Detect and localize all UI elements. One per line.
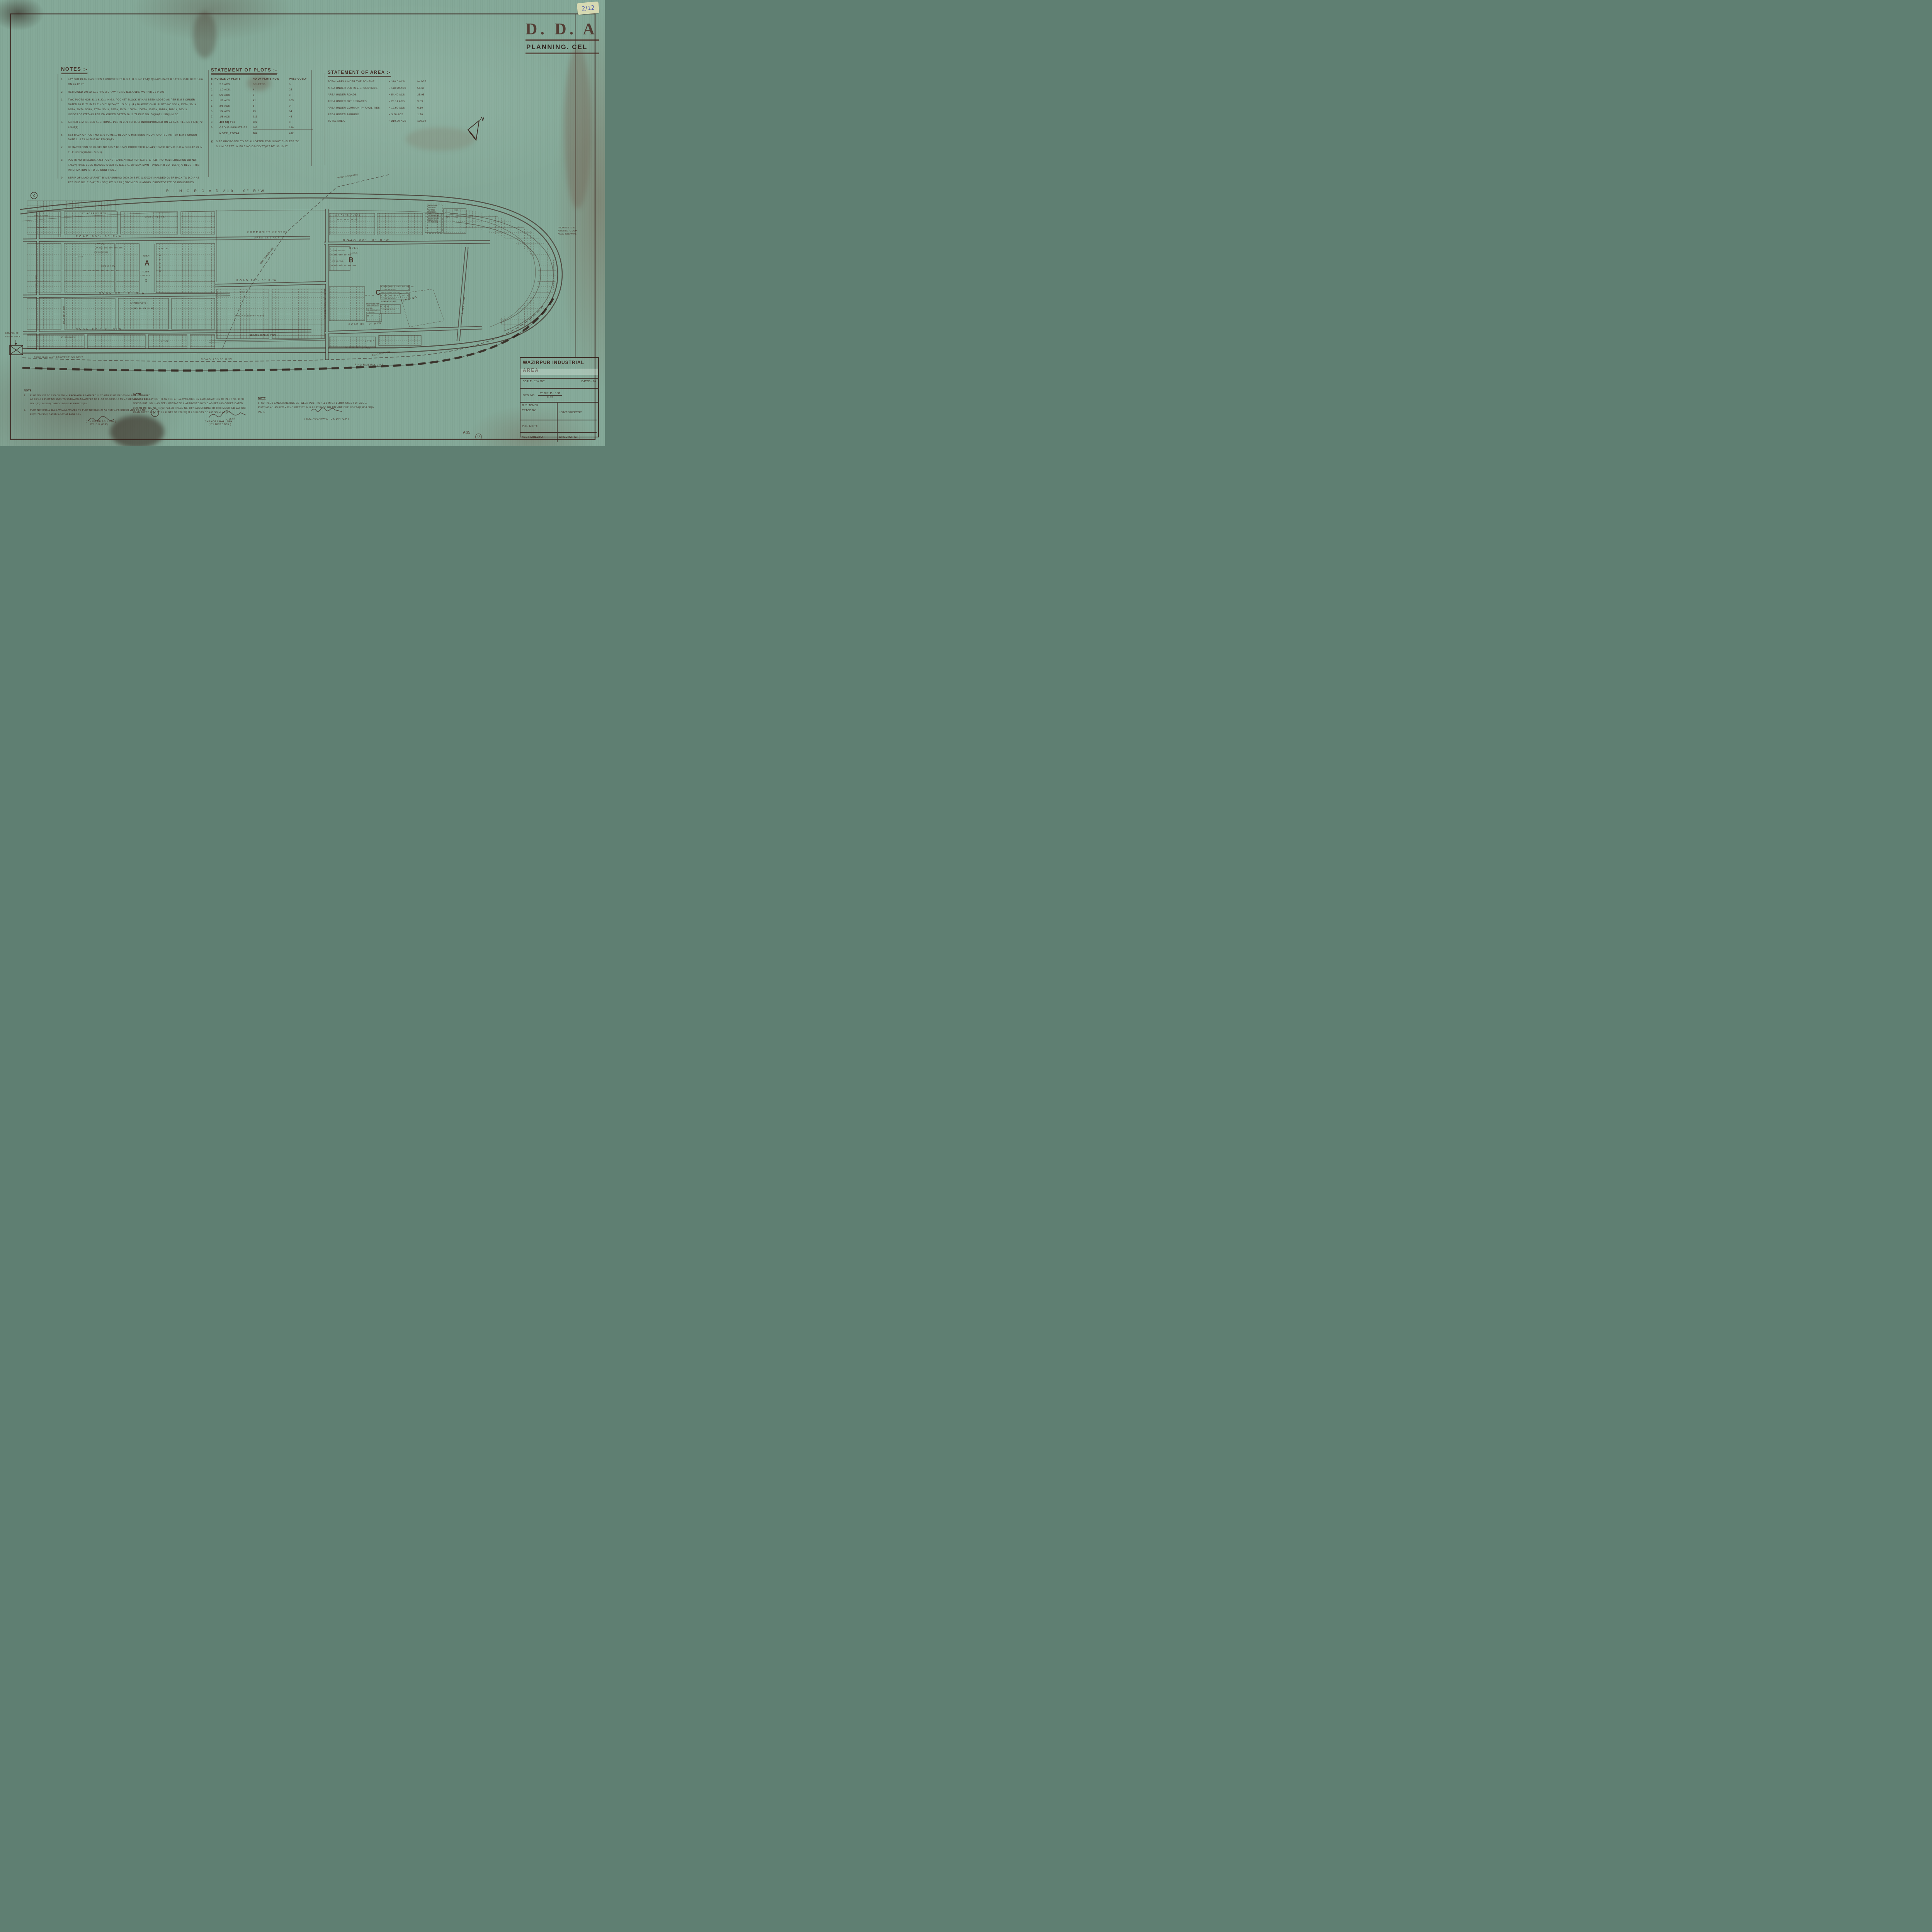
area-pct: 25.95 bbox=[417, 94, 434, 96]
sq-yds-400: 400 SQ YDS. bbox=[97, 243, 109, 245]
open-left: OPEN bbox=[76, 256, 83, 258]
plot-number-strip: 50515253 bbox=[345, 347, 359, 349]
bottom-left-heading: NOTE bbox=[24, 389, 151, 392]
open-21-acs: 2.1 ACS. bbox=[350, 252, 358, 255]
wd-road-45-label: 45'-0" WD ROAD bbox=[332, 260, 344, 262]
latrine-label-2: LATRINE BLOCK bbox=[5, 336, 20, 338]
cell: 42 bbox=[253, 99, 289, 102]
plot-number-column: 72/472/372/2 bbox=[454, 209, 458, 221]
plot-number-strip: 3636/136/23737/137/23838/1 bbox=[380, 286, 415, 288]
note-no: 5. bbox=[61, 120, 66, 130]
latrine-block-symbol bbox=[10, 340, 23, 355]
cell: 6. bbox=[211, 110, 219, 113]
plot-number-strip: 4647 bbox=[367, 315, 374, 317]
quarter-acre-c2: 1/4 ACRE PLOTS bbox=[383, 298, 396, 299]
cell: 1/8 ACS bbox=[219, 116, 253, 118]
road-80-vertical-central: ROAD 80'- 0" R/W bbox=[325, 288, 327, 319]
area-value: = 210.00 ACS bbox=[389, 120, 417, 122]
cell: 4. bbox=[211, 99, 219, 102]
area-value: = 12.90 ACS bbox=[389, 107, 417, 109]
x-mark-ringroad: X bbox=[31, 192, 37, 199]
half-acre-plots-1: 1/2 ACRE PLOTS bbox=[80, 213, 107, 215]
area-label: AREA UNDER ROADS bbox=[328, 94, 389, 96]
community-centre-label: COMMUNITY CENTRE bbox=[247, 231, 288, 234]
service-lane-label: SERVICE LANE 20'-0" WD. bbox=[381, 292, 400, 294]
anti-ravaraya-note: PROPOSED FORANTI RAVARAYA2.5 ACS.M.C.D I… bbox=[366, 303, 380, 313]
road-45-bottom: ROAD 45'-0" R/W bbox=[201, 358, 233, 361]
sheet-number-mark: 605 bbox=[463, 430, 471, 435]
plot-blocks bbox=[27, 201, 466, 349]
eighth-acre-plots: 1/8 ACRE PLOTS bbox=[94, 252, 108, 253]
fold-streak bbox=[520, 369, 598, 375]
signature-name: ( N.K. AGGARWAL - DY. DIR. C.P ) bbox=[304, 418, 374, 420]
road-80-lower-left: ROAD 80'- 0" R/W bbox=[76, 328, 123, 331]
plot-number-strip: 434445 bbox=[380, 306, 391, 308]
col-header: PREVIOUSLY bbox=[289, 78, 313, 80]
area-pct: % AGE bbox=[417, 80, 434, 83]
area-value: = 118.99 ACS bbox=[389, 87, 417, 90]
dda-stamp: D. D. A PLANNING. CEL bbox=[526, 20, 599, 54]
sheet-ref-sticker: 2/12 bbox=[577, 2, 599, 15]
cell: 8 bbox=[211, 121, 219, 124]
note-no: 2. bbox=[24, 408, 29, 417]
cell: 3/8 ACS bbox=[219, 105, 253, 107]
quarter-acre-left: 1/4 ACRE PLOTS bbox=[131, 303, 146, 305]
statement-of-area-title: STATEMENT OF AREA :- bbox=[328, 70, 391, 77]
cell: 5/8 ACS bbox=[219, 94, 253, 97]
area-pct: 56.66 bbox=[417, 87, 434, 90]
open-central: OPEN bbox=[240, 291, 245, 294]
statement-of-plots-panel: STATEMENT OF PLOTS :- S. NO SIZE OF PLOT… bbox=[211, 66, 310, 149]
cell: 2.0 ACS. bbox=[219, 83, 253, 86]
drg-no-top: JT. DIR. P-II 1/91 bbox=[538, 392, 562, 396]
notes-panel: NOTES :- 1.LAY OUT PLAN HAS BEEN APPROVE… bbox=[61, 66, 205, 185]
dim-1074: 107.4 M. bbox=[348, 240, 355, 242]
half-acre-plots-r: 1/2 ACRE PLOTS bbox=[335, 214, 361, 217]
dated-value: DATED - 76 bbox=[582, 380, 596, 386]
total-prev: 432 bbox=[289, 132, 313, 135]
joint-director-cell: JOINT DIRECTOR bbox=[558, 403, 597, 420]
drg-label: DRG. NO. bbox=[523, 394, 535, 397]
cell: 6 bbox=[253, 94, 289, 97]
note-no: 8. bbox=[61, 158, 66, 173]
notes-title: NOTES :- bbox=[61, 66, 88, 73]
ring-road-label: R I N G R O A D 210'- 0" R/W bbox=[166, 189, 266, 193]
road-30-label: ROAD 30'-0" R/W bbox=[34, 215, 48, 217]
footnote-mark: X bbox=[211, 139, 213, 149]
plot-725: 72/5 bbox=[446, 216, 450, 219]
eighth-acre-bottom: 1/8 ACRE PLOTS bbox=[61, 337, 75, 338]
plot-number-strip: 8181/18282/18383/1 bbox=[131, 308, 156, 310]
statement-of-plots-title: STATEMENT OF PLOTS :- bbox=[211, 68, 277, 74]
total-label: NOTE_TOTAL bbox=[219, 132, 253, 135]
cell: 105 bbox=[289, 99, 313, 102]
cell: 1/2 ACS bbox=[219, 99, 253, 102]
note-text: AS PER E.M. ORDER ADDITIONAL PLOTS 91/1 … bbox=[68, 120, 205, 130]
cell: 1 bbox=[211, 83, 219, 86]
note-no: 6. bbox=[61, 133, 66, 143]
bottom-right-heading: NOTE bbox=[258, 397, 374, 400]
col-header: SIZE OF PLOTS bbox=[219, 78, 253, 80]
director-cell: DIRECTOR (C.P) bbox=[558, 433, 597, 442]
cell: 213 bbox=[253, 116, 289, 118]
scale-value: 1" = 200' bbox=[534, 380, 544, 383]
dim-6150: 61.50 M bbox=[143, 271, 149, 273]
title-block: WAZIRPUR INDUSTRIAL AREA SCALE - 1" = 20… bbox=[520, 357, 599, 437]
bottom-right-note: NOTE 1. SURPLUS LAND AVAILABLE BETWEEN P… bbox=[258, 397, 374, 420]
note-no: 3. bbox=[61, 98, 66, 117]
acre-plots-1: ACRE PLOTS bbox=[145, 216, 165, 219]
plot-number-strip: 9293959799100 bbox=[337, 219, 359, 221]
note-no: 9 bbox=[61, 176, 66, 186]
area-label: TOTAL AREA UNDER THE SCHEME bbox=[328, 80, 389, 83]
bottom-middle-text: A MODIFIED LAY OUT PLAN FOR AREA AVAILAB… bbox=[133, 398, 249, 415]
plot-number-strip: 3939/139/24040/140/240/3 bbox=[380, 295, 412, 297]
corner-b-mark: B bbox=[475, 434, 482, 440]
area-pct: 6.10 bbox=[417, 107, 434, 109]
quarter-acre-c1: 1/4 ACRE PLOTS bbox=[383, 289, 396, 291]
road-80-upper-left: ROAD 80'- 0" R/W bbox=[76, 235, 123, 238]
service-road-label: SERVICE ROAD 45'-0" R/W bbox=[250, 334, 276, 337]
plot-number-strip: 85/285/38686/186/284/184/284/3 bbox=[83, 270, 121, 272]
x-mark-block-a: X bbox=[145, 279, 147, 282]
cell: 1/4 ACS bbox=[219, 110, 253, 113]
col-header: NO OF PLOTS NOW bbox=[253, 78, 289, 80]
cell: 1.0 ACS. bbox=[219, 88, 253, 91]
plots-footnote: SITE PROPOSED TO BE ALLOTTED FOR NIGHT S… bbox=[216, 139, 308, 149]
area-label: AREA UNDER PARKING bbox=[328, 113, 389, 116]
note-text: RETRACED ON 22.6.71 FROM DRAWING NO D.D.… bbox=[68, 90, 205, 95]
area-label: TOTAL AREA bbox=[328, 120, 389, 122]
plot-number-column: 5152535455 bbox=[159, 255, 161, 274]
cell: DELETED bbox=[253, 83, 289, 86]
note-text: LAY OUT PLAN HAS BEEN APPROVED BY D.D.A,… bbox=[68, 77, 205, 87]
notes-list: 1.LAY OUT PLAN HAS BEEN APPROVED BY D.D.… bbox=[61, 77, 205, 185]
area-label: AREA UNDER PLOTS & GROUP INDS. bbox=[328, 87, 389, 90]
stain bbox=[406, 128, 475, 151]
note-no: 1. bbox=[61, 77, 66, 87]
a-1000-sqm: A 1000 SQ M bbox=[140, 275, 150, 277]
note-text: STRIP OF LAND MARKET 'B' MEASURING 2600.… bbox=[68, 176, 205, 186]
area-pct: 9.59 bbox=[417, 100, 434, 103]
cell: 9 bbox=[211, 126, 219, 129]
road-80-vertical-left: ROAD 80'- 0" R/W bbox=[63, 306, 66, 324]
cell: 0 bbox=[289, 94, 313, 97]
drg-no-bottom: H-15 bbox=[538, 396, 562, 399]
bottom-middle-note: NOTE A MODIFIED LAY OUT PLAN FOR AREA AV… bbox=[133, 393, 249, 426]
note-no: 1. bbox=[24, 394, 29, 406]
stain bbox=[564, 46, 591, 209]
bottom-middle-heading: NOTE bbox=[133, 393, 249, 396]
traced-name: B. S. TOMER. bbox=[522, 404, 555, 407]
col-header: S. NO bbox=[211, 78, 219, 80]
road-60-left: ROAD 60'- 0" R/W bbox=[99, 292, 146, 295]
title-line1: WAZIRPUR INDUSTRIAL bbox=[523, 360, 596, 365]
plot-number-strip: 8787/187/287/387/487/5 bbox=[96, 247, 124, 249]
group-industry-label: GROUP INDUSTRY PLOTS bbox=[235, 315, 265, 317]
total-now: 784 bbox=[253, 132, 289, 135]
plot-10ac: 1.0 AC bbox=[445, 212, 451, 214]
cell: 3. bbox=[211, 94, 219, 97]
signature-title: ( DY DIRECTOR ) bbox=[209, 423, 249, 426]
cell: 229 bbox=[253, 121, 289, 124]
dda-stamp-org: D. D. A bbox=[526, 20, 599, 41]
cell: 25 bbox=[289, 88, 313, 91]
svg-text:X: X bbox=[32, 194, 35, 198]
cell: 3 bbox=[253, 105, 289, 107]
road-80-central: ROAD 80'- 0" R/W bbox=[236, 279, 277, 282]
rail-belt-label: RING RAILWAY PROTECTION BELT bbox=[34, 357, 83, 359]
plot-number-strip: 333435 bbox=[365, 295, 375, 297]
flatted-factory-note: PROPOSEDSITE FORFLATTEDFACTORYAREA=1.39 … bbox=[428, 205, 439, 223]
road-45-c: ROAD 45'-0" R/W bbox=[381, 301, 396, 303]
open-bottom-left: OPEN bbox=[161, 340, 168, 342]
cell: 2. bbox=[211, 88, 219, 91]
dda-stamp-dept: PLANNING. CEL bbox=[526, 41, 599, 54]
s-lane-label: S. LANE 20'-0" WD bbox=[332, 250, 345, 252]
cell: 189 bbox=[253, 126, 289, 129]
road-60-vertical: ROAD 60'- 0" R/W bbox=[36, 276, 38, 293]
scale-label: SCALE - bbox=[523, 380, 533, 383]
area-label: AREA UNDER COMMUNITY FACILITIES bbox=[328, 107, 389, 109]
asst-director-cell: ASST. DIRECTOR bbox=[520, 433, 558, 442]
traced-label: TRACE BY bbox=[522, 409, 555, 412]
note-no: 2 bbox=[61, 90, 66, 95]
cell: 45 bbox=[289, 116, 313, 118]
note-text: DEMARCATION OF PLOTS NO 103/7 TO 104/9 C… bbox=[68, 145, 205, 155]
rail-line-label: RING RAILWAY LINE bbox=[355, 364, 383, 367]
sq-yds-450: 450 SQ YDS bbox=[37, 227, 47, 229]
plg-asstt-cell: PLG. ASSTT. bbox=[520, 420, 558, 433]
area-pct: 1.70 bbox=[417, 113, 434, 116]
area-value: = 54.40 ACS bbox=[389, 94, 417, 96]
community-centre-area: AREA 12.9 ACS. bbox=[254, 236, 281, 239]
area-value: = 3.60 ACS bbox=[389, 113, 417, 116]
block-a-label: A bbox=[145, 260, 150, 267]
bottom-left-notes: NOTE 1.PLOT NO 93/1 TO 93/5 OF 200 M² EA… bbox=[24, 389, 151, 426]
plot-number-strip: 2929/129/23030/130/2 bbox=[331, 265, 357, 267]
maha-nigam-note: PROPOSED TO BEALLOTTED TO MAHANIGAM TELE… bbox=[558, 226, 577, 236]
cell: 0 bbox=[289, 121, 313, 124]
half-acre-c: 1/2 ACRE PLOTS bbox=[383, 309, 395, 311]
area-value: = 20.11 ACS bbox=[389, 100, 417, 103]
road-40-label: ROAD 40'-0" R/W bbox=[101, 265, 115, 267]
plot-number-strip: 4949/150 bbox=[158, 248, 170, 250]
open-block-b: OPEN bbox=[349, 247, 359, 250]
block-b-label: B bbox=[349, 257, 354, 264]
cell: 0 bbox=[289, 105, 313, 107]
cell: 7. bbox=[211, 116, 219, 118]
stain bbox=[193, 12, 216, 58]
blueprint-sheet: N X X X D. D. A bbox=[0, 0, 605, 446]
latrine-label-1: LOCATION OF bbox=[5, 333, 19, 335]
cell: GROUP INDUSTRIES bbox=[219, 126, 253, 129]
note-text: SET BACK OF PLOT NO 91/1 TO 91/10 BLOCK-… bbox=[68, 133, 205, 143]
cell: 6 bbox=[289, 83, 313, 86]
north-label: N bbox=[480, 116, 485, 122]
cell: 64 bbox=[289, 110, 313, 113]
cell: 4 bbox=[253, 88, 289, 91]
statement-of-area-panel: STATEMENT OF AREA :- TOTAL AREA UNDER TH… bbox=[328, 69, 436, 122]
cell: 99 bbox=[253, 110, 289, 113]
cell: 400 SQ YDS bbox=[219, 121, 253, 124]
open-block-a: OPEN bbox=[143, 255, 150, 257]
note-no: 7. bbox=[61, 145, 66, 155]
area-label: AREA UNDER OPEN SPACES bbox=[328, 100, 389, 103]
cell: 186 bbox=[289, 126, 313, 129]
area-value: = 210.0 ACS. bbox=[389, 80, 417, 83]
note-text: PLOTS NO 28 BLOCK-A G.I POCKET EARMARKED… bbox=[68, 158, 205, 173]
cell: 5. bbox=[211, 105, 219, 107]
open-144-acs: 1.44 ACS bbox=[362, 347, 370, 350]
note-text: TWO PLOTS NOS 31/1 & 32/1 IN G.I. POCKET… bbox=[68, 98, 205, 117]
bottom-right-text: 1. SURPLUS LAND AVAILABLE BETWEEN PLOT N… bbox=[258, 401, 374, 415]
open-arc: OPEN bbox=[365, 340, 376, 342]
area-pct: 100.00 bbox=[417, 120, 434, 122]
